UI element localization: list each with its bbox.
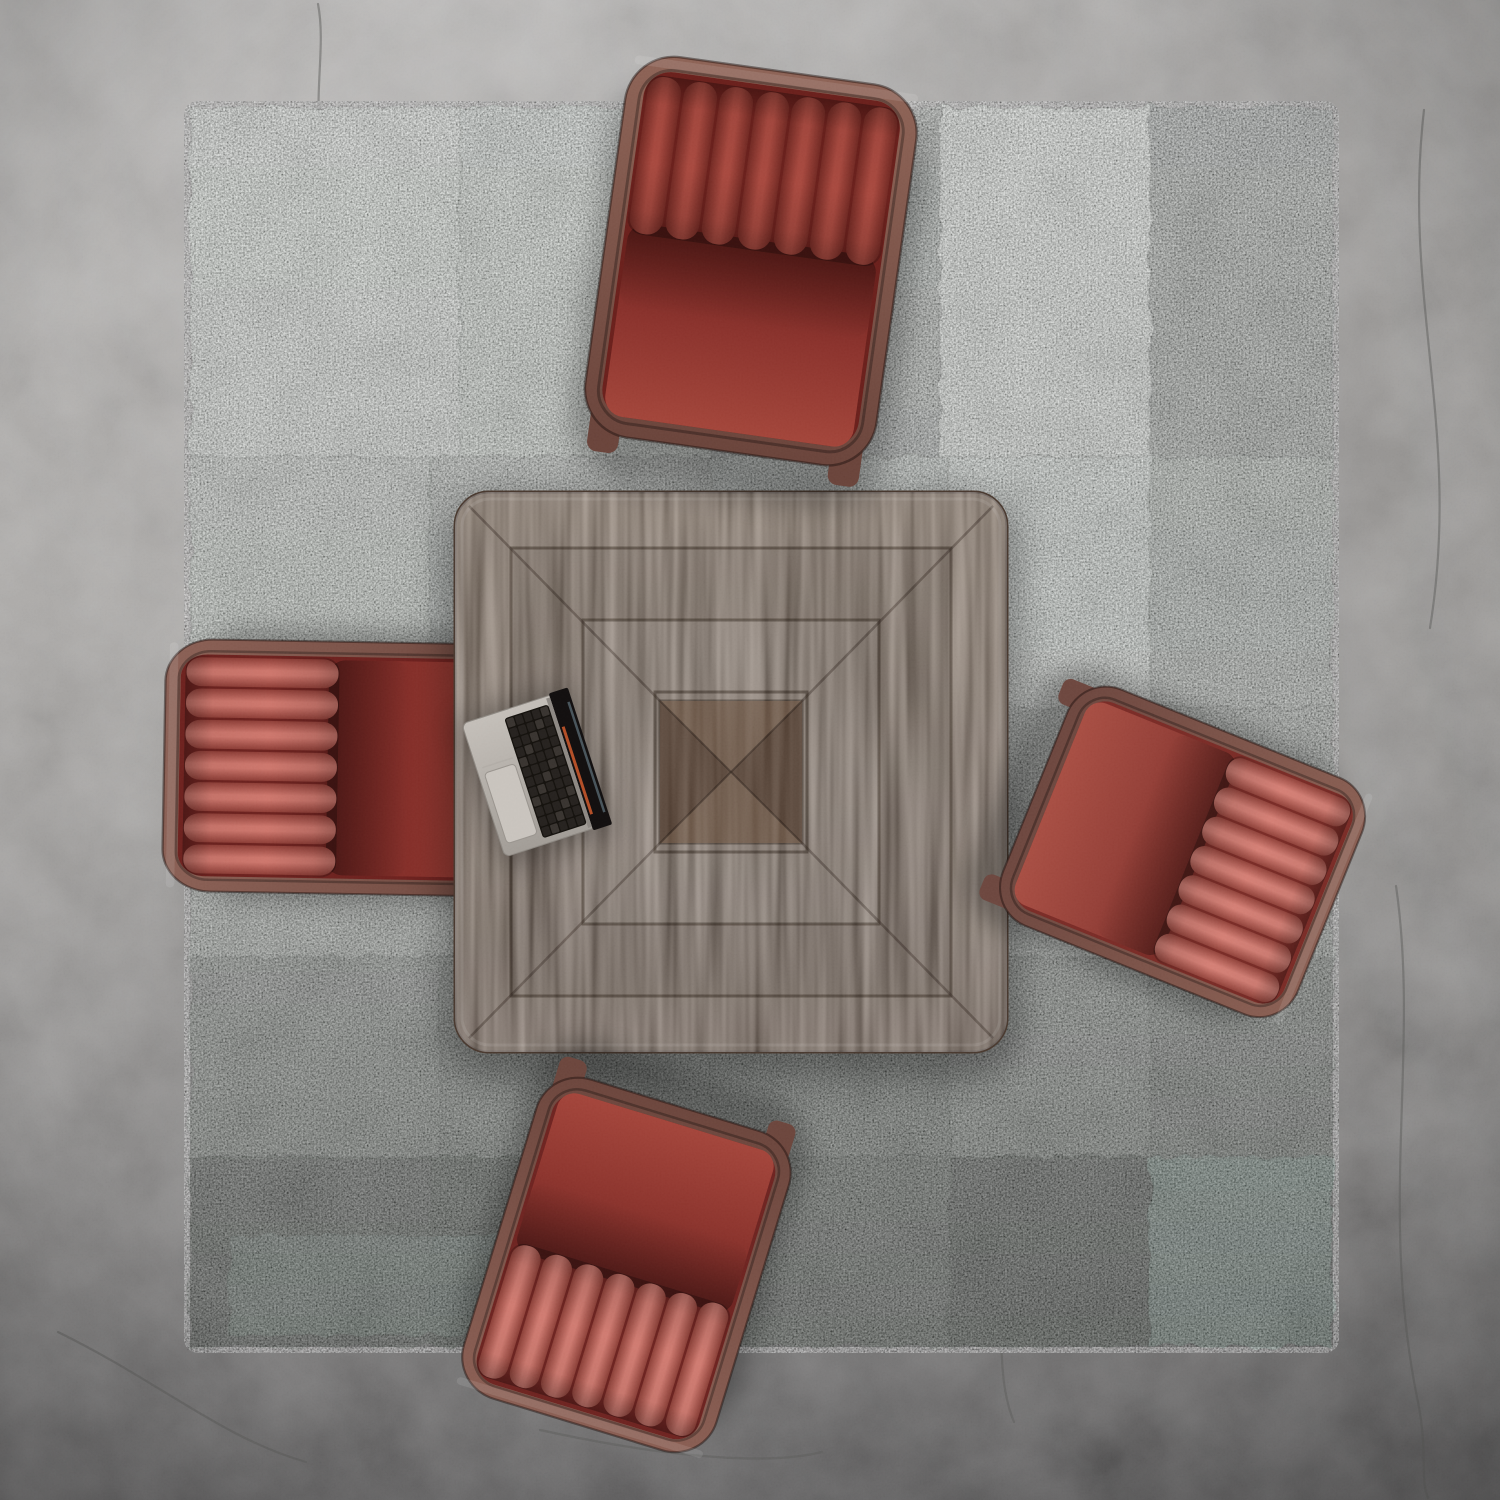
furniture-render: Top-down render: square walnut marquetry… xyxy=(0,0,1500,1500)
vignette xyxy=(0,0,1500,1500)
scene-canvas xyxy=(0,0,1500,1500)
